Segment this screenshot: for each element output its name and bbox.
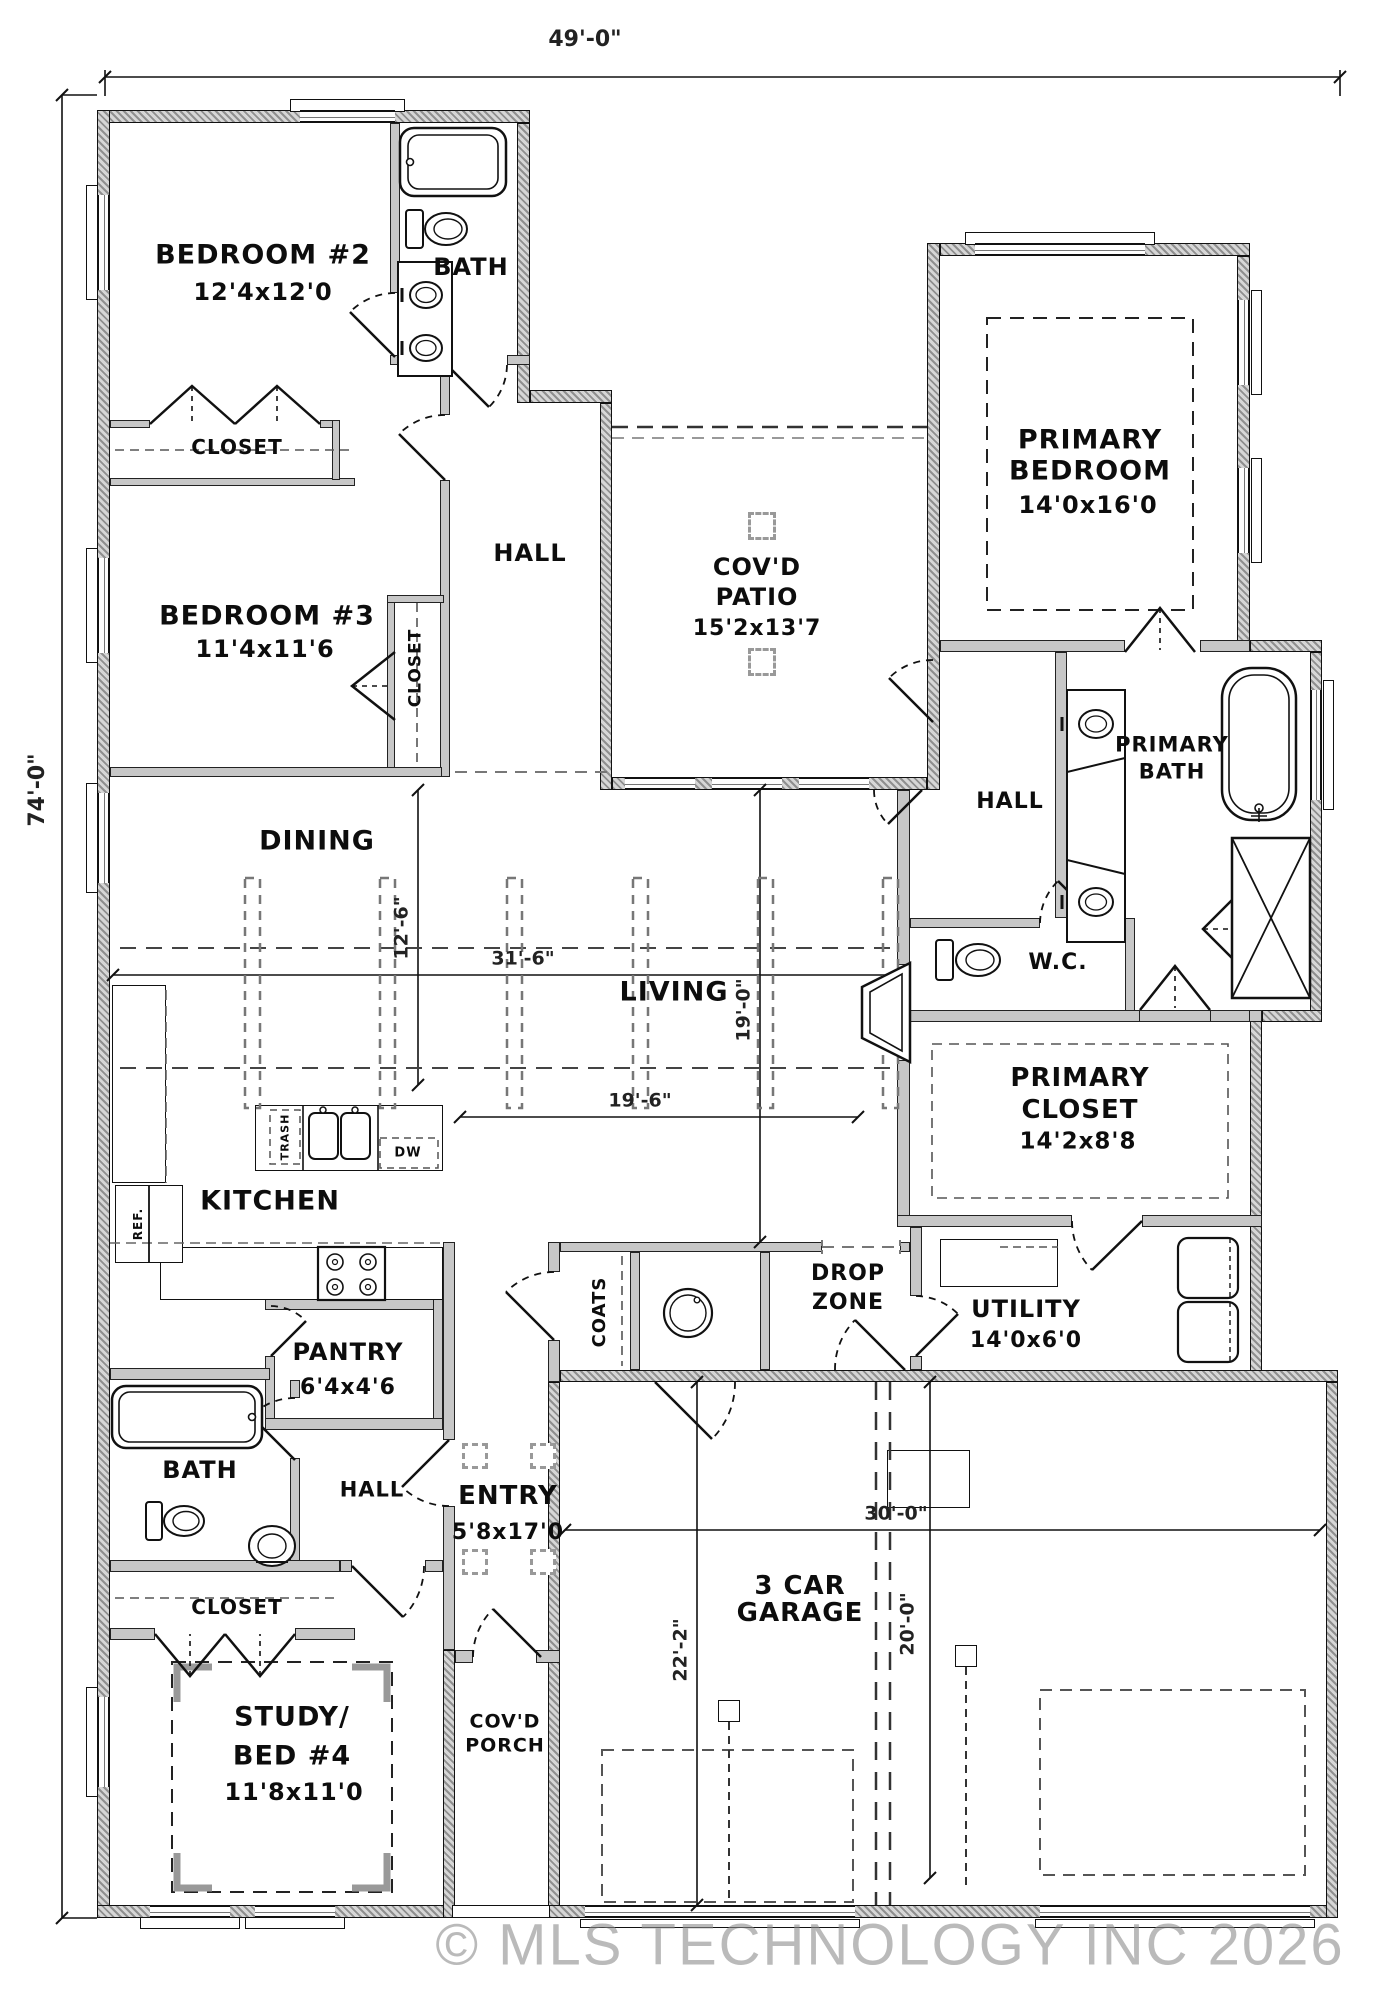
wall-segment xyxy=(897,790,910,965)
washer-icon xyxy=(1178,1238,1238,1298)
room-label-study-2: BED #4 xyxy=(233,1743,351,1770)
room-size-utility: 14'0x6'0 xyxy=(970,1330,1082,1352)
wall-segment xyxy=(1326,1382,1338,1918)
room-label-covd-porch-1: COV'D xyxy=(470,1713,541,1732)
room-label-closet-bedroom2: CLOSET xyxy=(191,437,282,457)
wall-segment xyxy=(560,1242,822,1252)
refrigerator-icon xyxy=(115,1185,183,1263)
entry-post xyxy=(530,1549,556,1575)
room-size-study: 11'8x11'0 xyxy=(224,1780,363,1804)
wall-segment xyxy=(900,1242,910,1252)
dim-living-depth: 19'-0" xyxy=(735,978,754,1041)
wall-segment xyxy=(560,1370,1338,1382)
wall-segment xyxy=(548,1340,560,1382)
window-sill xyxy=(140,1917,240,1929)
room-label-kitchen: KITCHEN xyxy=(200,1188,340,1215)
wall-segment xyxy=(760,1252,770,1370)
room-label-hall-upper: HALL xyxy=(493,541,566,565)
dim-living-width: 31'-6" xyxy=(491,950,554,969)
attic-access xyxy=(887,1450,970,1508)
floor-plan: 49'-0" 74'-0" BEDROOM #2 12'4x12'0 BATH … xyxy=(0,0,1379,2003)
dim-overall-width: 49'-0" xyxy=(548,29,621,51)
room-label-bedroom2: BEDROOM #2 xyxy=(155,242,371,269)
wall-segment xyxy=(110,420,150,428)
room-label-wc: W.C. xyxy=(1028,952,1087,974)
wall-segment xyxy=(443,1650,455,1918)
window xyxy=(255,1905,335,1918)
window xyxy=(97,793,110,883)
wall-segment xyxy=(387,595,395,777)
window xyxy=(712,777,782,790)
room-label-pantry: PANTRY xyxy=(293,1340,404,1364)
wall-segment xyxy=(455,1650,473,1663)
wall-segment xyxy=(110,1560,340,1572)
room-label-primary-bedroom-1: PRIMARY xyxy=(1018,427,1162,454)
utility-counter xyxy=(940,1239,1058,1287)
garage-door-post xyxy=(718,1700,740,1722)
wall-segment xyxy=(1250,1010,1262,1382)
garage-door-post xyxy=(955,1645,977,1667)
window-sill xyxy=(1251,458,1262,563)
bathtub-icon xyxy=(400,128,506,196)
room-label-primary-bedroom-2: BEDROOM xyxy=(1009,458,1171,485)
room-label-study-1: STUDY/ xyxy=(234,1704,350,1731)
room-label-drop-zone-1: DROP xyxy=(811,1263,885,1285)
room-label-bedroom3: BEDROOM #3 xyxy=(159,603,375,630)
wall-segment xyxy=(548,1242,560,1272)
wall-segment xyxy=(1055,652,1067,918)
patio-post xyxy=(748,648,776,676)
wall-segment xyxy=(433,1298,443,1430)
wall-segment xyxy=(340,1560,352,1572)
dim-garage-width: 30'-0" xyxy=(864,1505,927,1524)
wall-segment xyxy=(290,1458,300,1570)
wall-segment xyxy=(440,480,450,777)
wall-segment xyxy=(332,420,340,480)
wall-segment xyxy=(910,1227,922,1296)
wall-segment xyxy=(295,1628,355,1640)
room-label-garage-1: 3 CAR xyxy=(754,1573,845,1599)
wall-segment xyxy=(1142,1215,1262,1227)
wall-segment xyxy=(910,1356,922,1370)
wall-segment xyxy=(507,355,530,365)
window xyxy=(625,777,695,790)
wall-segment xyxy=(290,1380,300,1398)
room-size-entry: 5'8x17'0 xyxy=(452,1522,564,1544)
window-sill xyxy=(245,1917,345,1929)
wall-segment xyxy=(1250,640,1322,652)
watermark-text: © MLS TECHNOLOGY INC 2026 xyxy=(435,1912,1344,1979)
room-label-coats: COATS xyxy=(591,1277,609,1348)
utility-sink-icon xyxy=(664,1289,712,1337)
wall-segment xyxy=(910,1010,1140,1022)
dryer-icon xyxy=(1178,1302,1238,1362)
wall-segment xyxy=(1262,1010,1322,1022)
dim-garage-bay2-depth: 20'-0" xyxy=(899,1592,918,1655)
room-size-primary-bedroom: 14'0x16'0 xyxy=(1018,493,1157,517)
window xyxy=(97,195,110,290)
window xyxy=(975,243,1145,256)
bathtub-icon xyxy=(1222,668,1296,822)
wall-segment xyxy=(927,243,940,790)
room-label-closet-bedroom3: CLOSET xyxy=(408,629,425,708)
room-label-hall-lower: HALL xyxy=(340,1480,405,1501)
room-label-primary-bath-2: BATH xyxy=(1139,762,1206,783)
refrigerator-label: REF. xyxy=(132,1208,144,1240)
room-size-pantry: 6'4x4'6 xyxy=(300,1377,396,1399)
wall-segment xyxy=(110,767,442,777)
room-label-primary-closet-1: PRIMARY xyxy=(1010,1065,1149,1091)
window xyxy=(300,110,395,123)
shower-icon xyxy=(1232,838,1310,998)
toilet-icon xyxy=(146,1502,204,1540)
wall-segment xyxy=(630,1252,640,1370)
room-label-garage-2: GARAGE xyxy=(737,1600,864,1626)
kitchen-counter xyxy=(160,1247,443,1300)
window xyxy=(1237,300,1250,385)
room-label-covd-patio-1: COV'D xyxy=(713,555,801,579)
wall-segment xyxy=(265,1418,443,1430)
room-label-closet-lower: CLOSET xyxy=(191,1597,282,1617)
window-sill xyxy=(1251,290,1262,395)
wall-segment xyxy=(443,1242,455,1440)
wall-segment xyxy=(530,390,612,403)
wall-segment xyxy=(97,110,110,1918)
room-label-bath-lower: BATH xyxy=(162,1458,237,1482)
wall-segment xyxy=(897,1060,910,1227)
dim-overall-depth: 74'-0" xyxy=(27,753,49,826)
fireplace-icon xyxy=(862,963,910,1062)
trash-label: TRASH xyxy=(280,1114,291,1161)
room-label-dining: DINING xyxy=(259,828,375,855)
room-label-covd-porch-2: PORCH xyxy=(465,1737,545,1756)
room-size-bedroom3: 11'4x11'6 xyxy=(195,637,334,661)
window xyxy=(97,558,110,653)
dim-living-inner-width: 19'-6" xyxy=(608,1092,671,1111)
room-label-primary-bath-1: PRIMARY xyxy=(1115,735,1229,756)
wall-segment xyxy=(390,355,447,365)
dim-garage-bay-depth: 22'-2" xyxy=(672,1618,691,1681)
room-label-entry: ENTRY xyxy=(458,1483,558,1509)
room-size-bedroom2: 12'4x12'0 xyxy=(193,280,332,304)
room-label-bath-upper: BATH xyxy=(433,255,508,279)
room-label-utility: UTILITY xyxy=(971,1297,1081,1321)
sink-icon xyxy=(1062,690,1125,942)
entry-post xyxy=(530,1443,556,1469)
wall-segment xyxy=(425,1560,443,1572)
window xyxy=(1237,468,1250,553)
room-label-hall-primary: HALL xyxy=(976,791,1043,813)
wall-segment xyxy=(390,123,400,293)
wall-segment xyxy=(1125,918,1135,1022)
window xyxy=(1310,690,1322,800)
entry-post xyxy=(462,1443,488,1469)
wall-segment xyxy=(536,1650,560,1663)
room-label-covd-patio-2: PATIO xyxy=(716,585,799,609)
bathtub-icon xyxy=(112,1386,262,1448)
room-size-primary-closet: 14'2x8'8 xyxy=(1020,1131,1137,1154)
dishwasher-label: DW xyxy=(394,1147,421,1160)
wall-segment xyxy=(110,1368,270,1380)
wall-segment xyxy=(897,1215,1072,1227)
window xyxy=(799,777,869,790)
wall-segment xyxy=(910,918,1040,928)
wall-segment xyxy=(940,640,1125,652)
wall-segment xyxy=(600,403,612,790)
room-size-covd-patio: 15'2x13'7 xyxy=(693,618,822,640)
wall-segment xyxy=(1210,1010,1250,1022)
window xyxy=(97,1697,110,1787)
window-sill xyxy=(1323,680,1334,810)
room-label-drop-zone-2: ZONE xyxy=(812,1292,884,1314)
wall-segment xyxy=(110,1628,155,1640)
wall-segment xyxy=(110,478,355,486)
patio-post xyxy=(748,512,776,540)
wall-segment xyxy=(387,595,444,603)
entry-post xyxy=(462,1549,488,1575)
wall-segment xyxy=(1200,640,1250,652)
toilet-icon xyxy=(406,210,467,248)
kitchen-counter xyxy=(112,985,166,1183)
toilet-icon xyxy=(936,940,1000,980)
window xyxy=(150,1905,230,1918)
room-label-living: LIVING xyxy=(620,979,729,1006)
room-label-primary-closet-2: CLOSET xyxy=(1021,1097,1138,1123)
dim-dining-depth: 12'-6" xyxy=(393,896,412,959)
wall-segment xyxy=(440,365,450,415)
